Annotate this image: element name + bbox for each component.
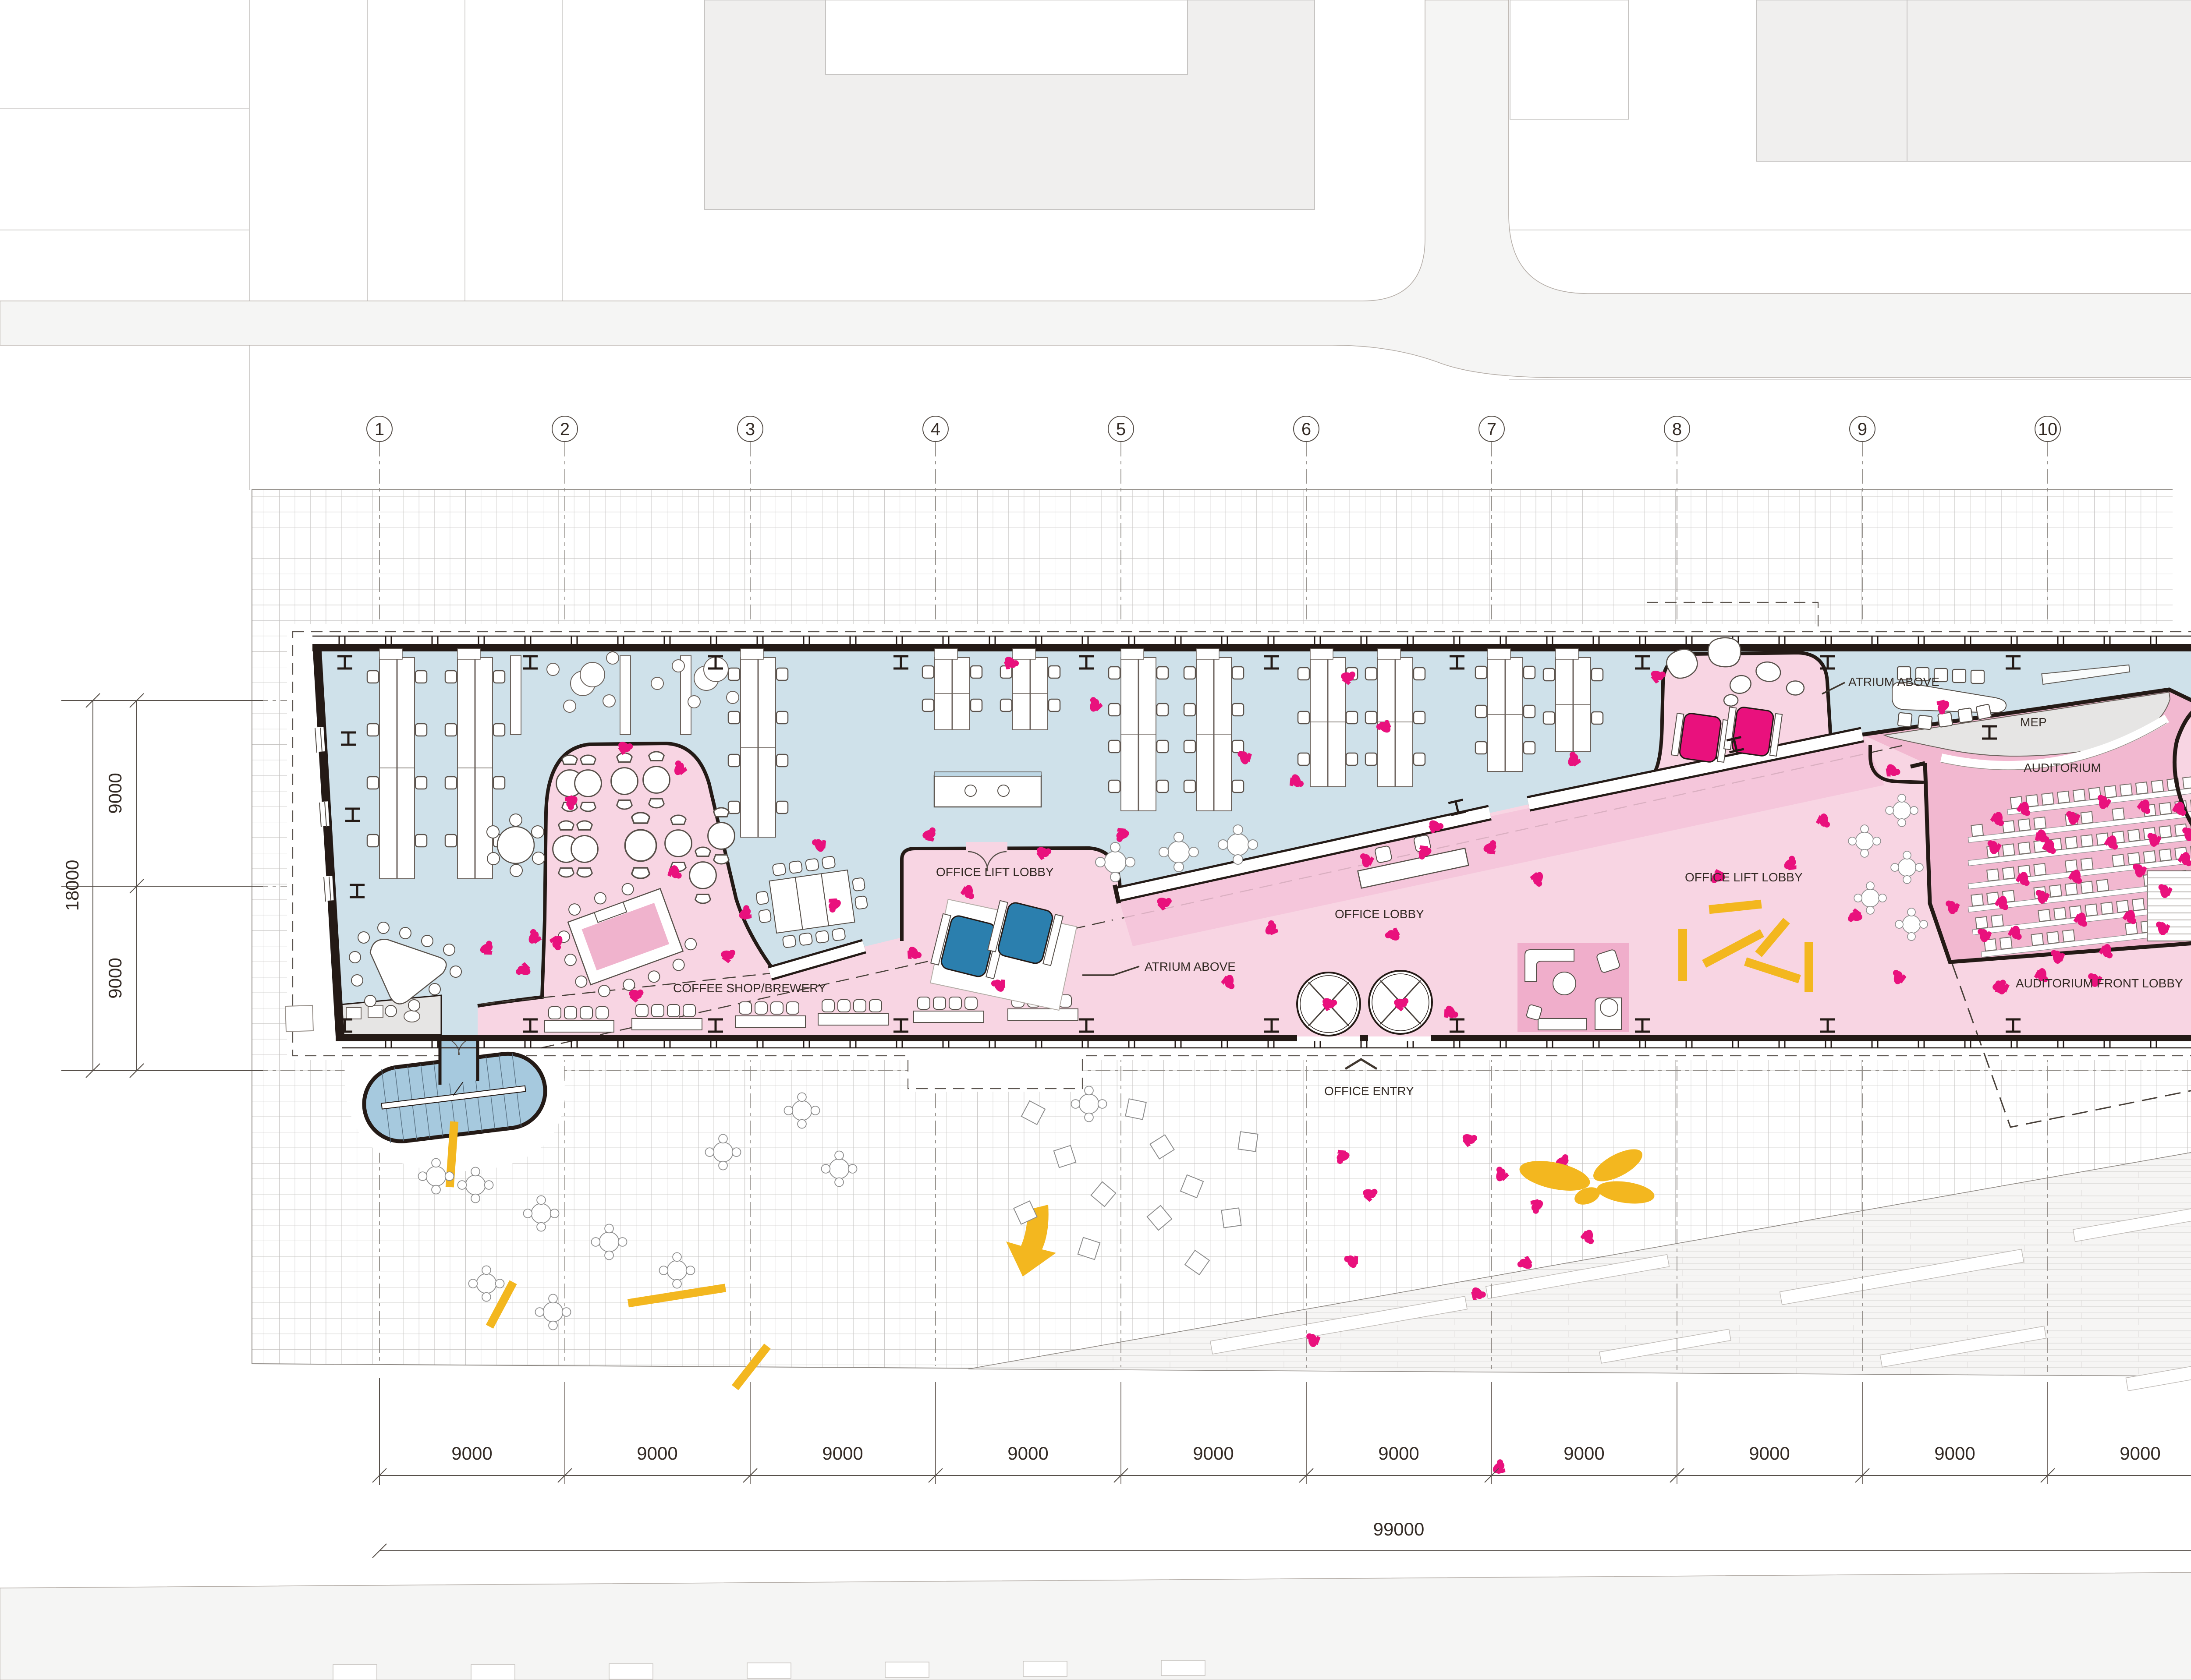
svg-text:99000: 99000 [1373, 1519, 1425, 1539]
svg-text:7: 7 [1487, 420, 1496, 439]
svg-text:2: 2 [560, 420, 570, 439]
svg-text:OFFICE LOBBY: OFFICE LOBBY [1335, 907, 1424, 921]
svg-text:AUDITORIUM FRONT LOBBY: AUDITORIUM FRONT LOBBY [2016, 976, 2183, 990]
svg-text:9000: 9000 [2120, 1443, 2160, 1464]
svg-text:9000: 9000 [1193, 1443, 1234, 1464]
svg-text:10: 10 [2038, 420, 2058, 439]
svg-text:9000: 9000 [105, 958, 125, 998]
svg-text:9000: 9000 [105, 773, 125, 813]
svg-text:MEP: MEP [2020, 715, 2047, 729]
svg-text:9000: 9000 [822, 1443, 863, 1464]
svg-text:9000: 9000 [1563, 1443, 1604, 1464]
svg-text:9000: 9000 [1378, 1443, 1419, 1464]
svg-text:6: 6 [1301, 420, 1311, 439]
svg-text:9000: 9000 [451, 1443, 492, 1464]
svg-text:9000: 9000 [1007, 1443, 1048, 1464]
svg-text:9000: 9000 [1749, 1443, 1790, 1464]
svg-text:3: 3 [745, 420, 755, 439]
svg-text:OFFICE LIFT LOBBY: OFFICE LIFT LOBBY [1685, 870, 1803, 884]
svg-text:9: 9 [1858, 420, 1867, 439]
svg-text:ATRIUM ABOVE: ATRIUM ABOVE [1145, 960, 1236, 973]
svg-text:OFFICE LIFT LOBBY: OFFICE LIFT LOBBY [936, 865, 1054, 879]
svg-text:1: 1 [375, 420, 384, 439]
svg-text:COFFEE SHOP/BREWERY: COFFEE SHOP/BREWERY [673, 981, 826, 995]
svg-text:9000: 9000 [637, 1443, 677, 1464]
svg-text:AUDITORIUM: AUDITORIUM [2024, 761, 2101, 775]
svg-text:OFFICE ENTRY: OFFICE ENTRY [1324, 1084, 1414, 1098]
svg-text:9000: 9000 [1934, 1443, 1975, 1464]
svg-text:5: 5 [1116, 420, 1126, 439]
svg-text:18000: 18000 [62, 860, 82, 911]
svg-text:ATRIUM ABOVE: ATRIUM ABOVE [1848, 675, 1939, 689]
svg-text:4: 4 [931, 420, 940, 439]
svg-text:8: 8 [1672, 420, 1682, 439]
